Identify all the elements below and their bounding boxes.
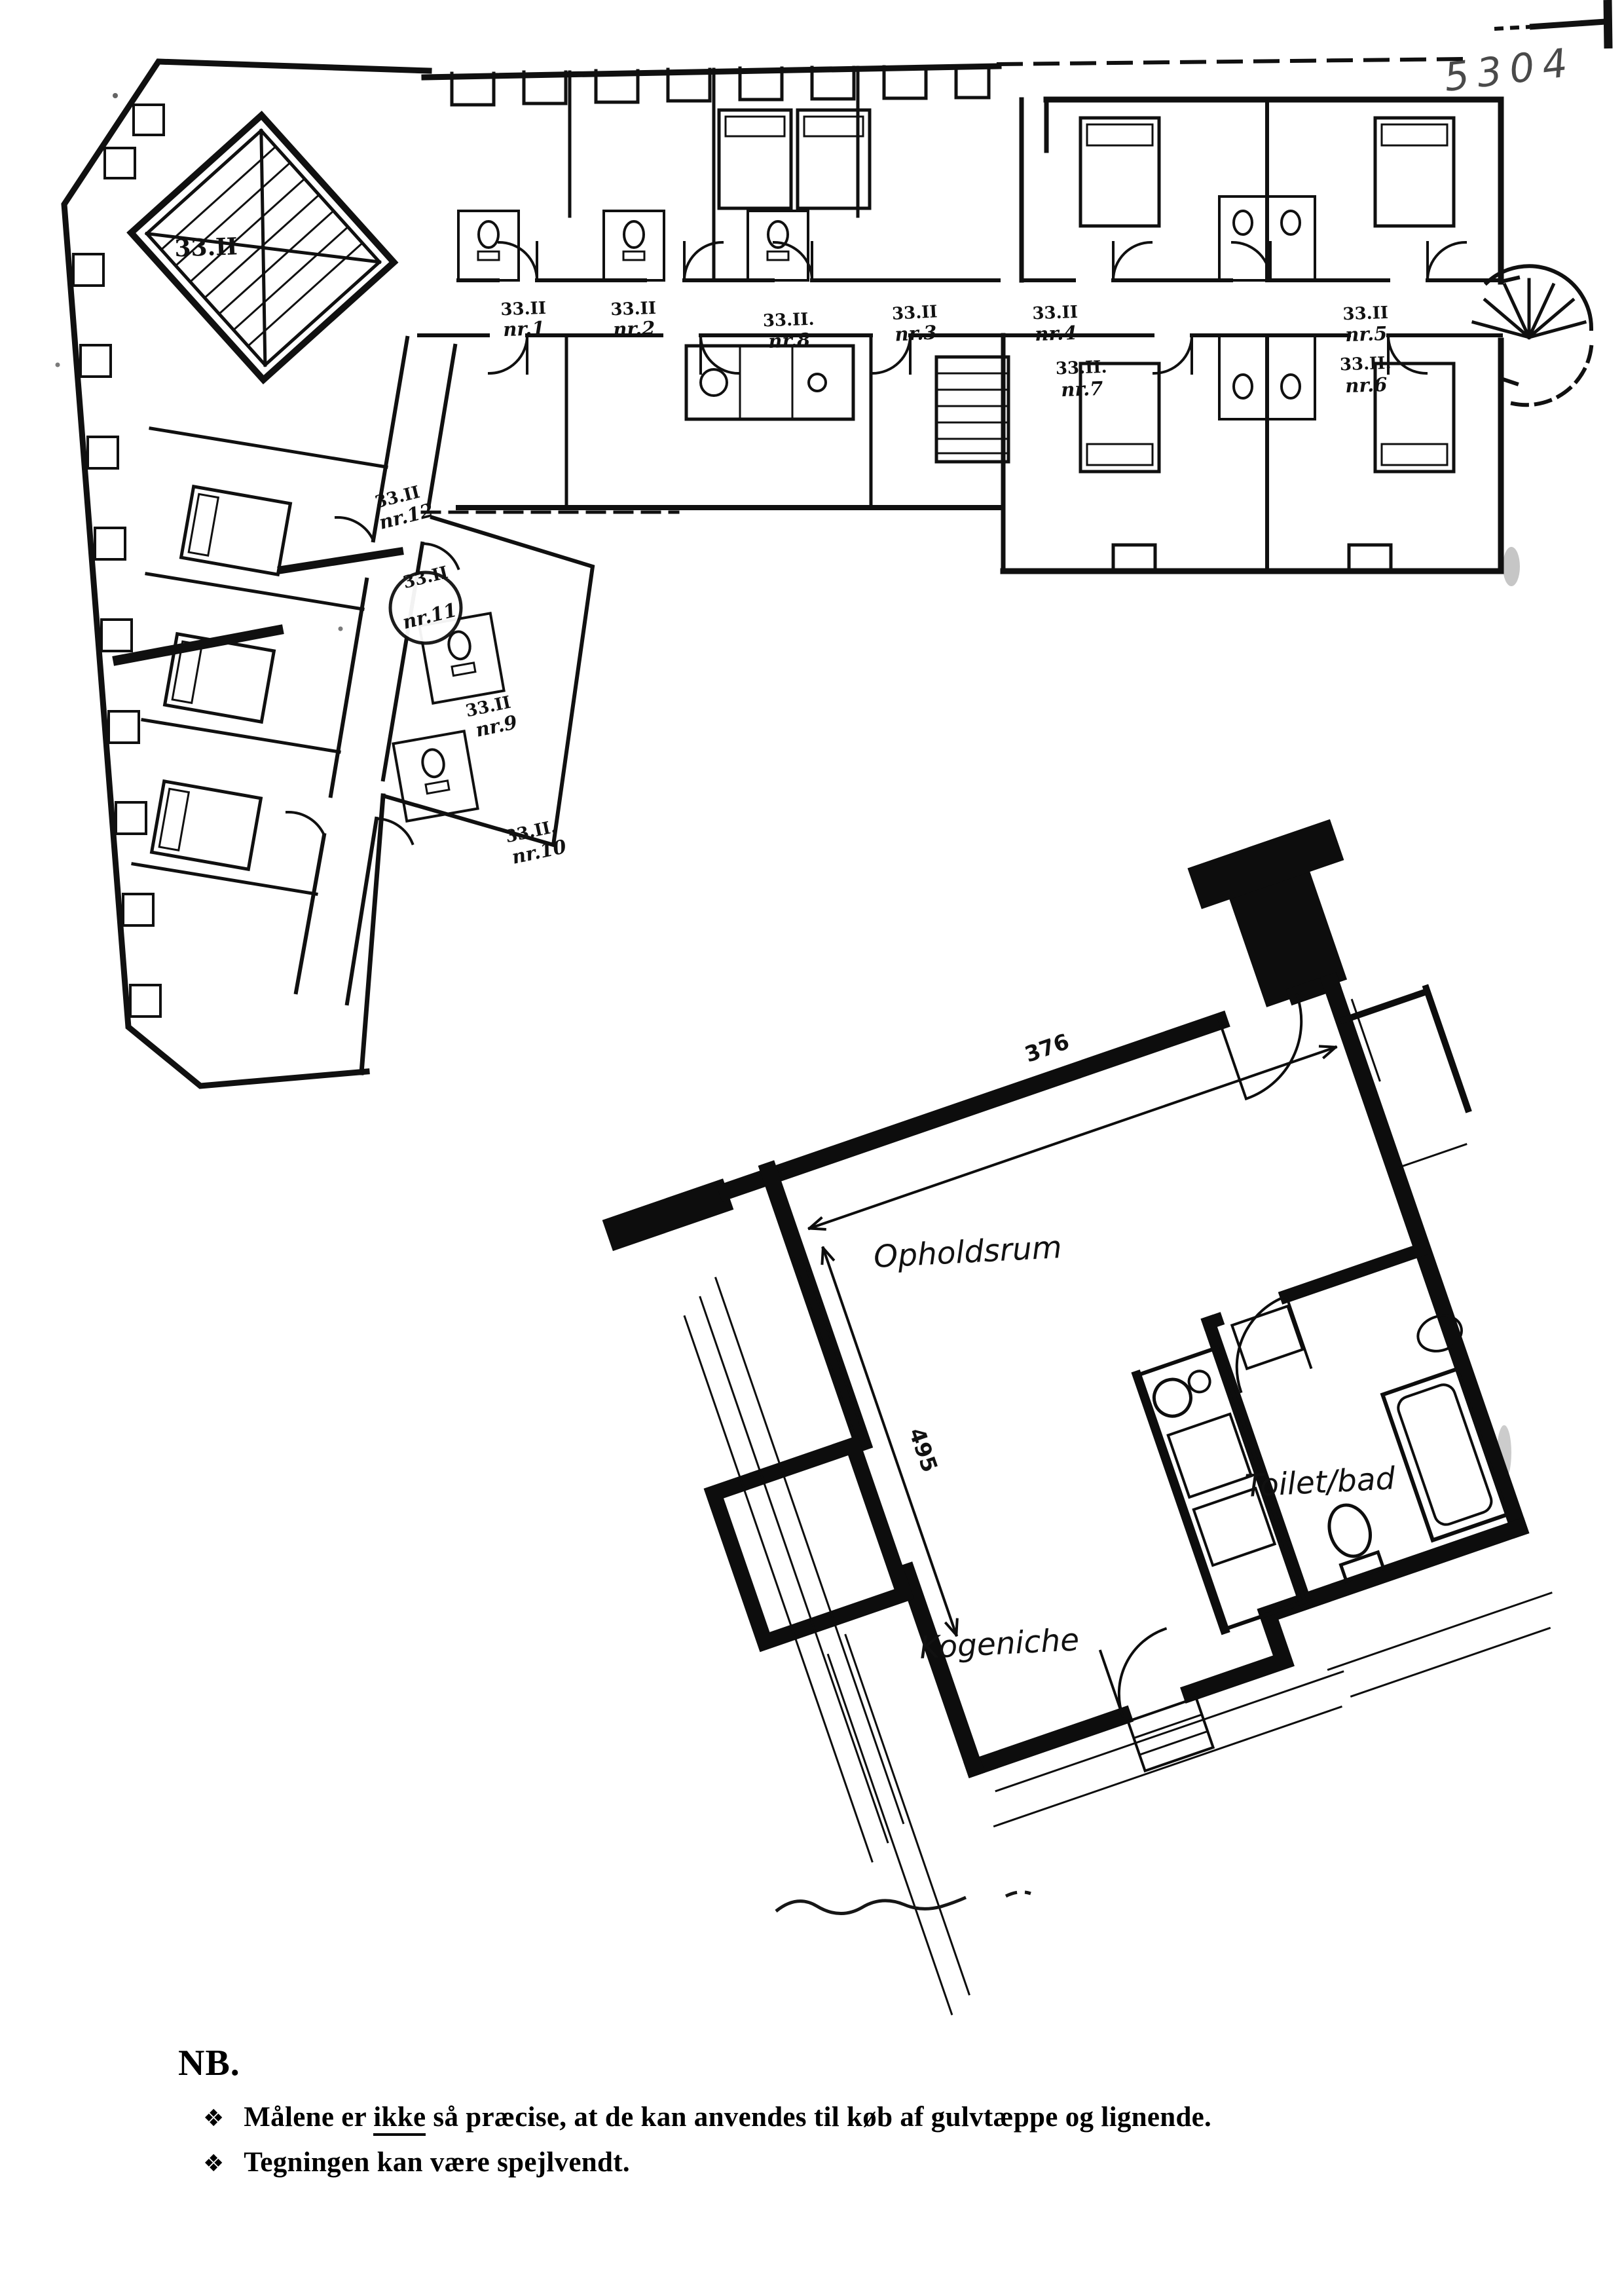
dimension-495: 495	[904, 1425, 942, 1476]
unit-label: 33.II	[1032, 303, 1079, 324]
scan-noise	[56, 93, 1521, 1480]
room-label-toiletbad: Toilet/bad	[1244, 1461, 1397, 1504]
stairwell	[131, 115, 394, 380]
unit-number: nr.3	[895, 321, 938, 345]
unit-number: nr.1	[503, 317, 545, 341]
upper-building-plan	[64, 59, 1591, 1086]
unit-number: nr.4	[1035, 322, 1077, 345]
squiggle-dash	[1006, 1892, 1031, 1896]
lower-unit-plan	[556, 808, 1624, 2038]
bed-symbol	[719, 110, 870, 208]
diamond-bullet-icon: ❖	[203, 2105, 224, 2132]
note-text: Tegningen kan være spejlvendt.	[244, 2146, 630, 2178]
notes-block: NB. ❖ Målene er ikke så præcise, at de k…	[178, 2042, 1462, 2192]
room-label-kogeniche: Kogeniche	[919, 1622, 1080, 1666]
unit-label: 33.II.	[762, 310, 815, 331]
scanned-floor-plan-page: 33.II 33.IInr.1 33.IInr.2 33.II.nr.8 33.…	[0, 0, 1624, 2295]
building-label: 33.II	[174, 233, 238, 262]
unit-number: nr.5	[1345, 322, 1388, 346]
unit-label: 33.II	[1342, 303, 1389, 324]
lower-plan-labels: Opholdsrum Toilet/bad Kogeniche 376 495	[873, 1028, 1397, 1666]
note-text: Målene er ikke så præcise, at de kan anv…	[244, 2101, 1211, 2133]
unit-number: nr.6	[1345, 373, 1388, 397]
unit-number: nr.2	[613, 317, 655, 341]
diamond-bullet-icon: ❖	[203, 2150, 224, 2177]
upper-plan-labels: 33.II 33.IInr.1 33.IInr.2 33.II.nr.8 33.…	[174, 233, 1392, 868]
unit-label: 33.II.	[1055, 358, 1107, 379]
note-bullet-2: ❖ Tegningen kan være spejlvendt.	[178, 2146, 1462, 2178]
unit-label: 33.II.	[1339, 354, 1392, 375]
dimension-376: 376	[1022, 1028, 1073, 1067]
floor-plan-drawing: 33.II 33.IInr.1 33.IInr.2 33.II.nr.8 33.…	[0, 0, 1624, 2295]
room-label-opholdsrum: Opholdsrum	[873, 1229, 1063, 1275]
note-bullet-1: ❖ Målene er ikke så præcise, at de kan a…	[178, 2101, 1462, 2133]
unit-number: nr.7	[1061, 377, 1103, 401]
notes-heading: NB.	[178, 2042, 1462, 2084]
unit-number: nr.8	[768, 329, 811, 352]
